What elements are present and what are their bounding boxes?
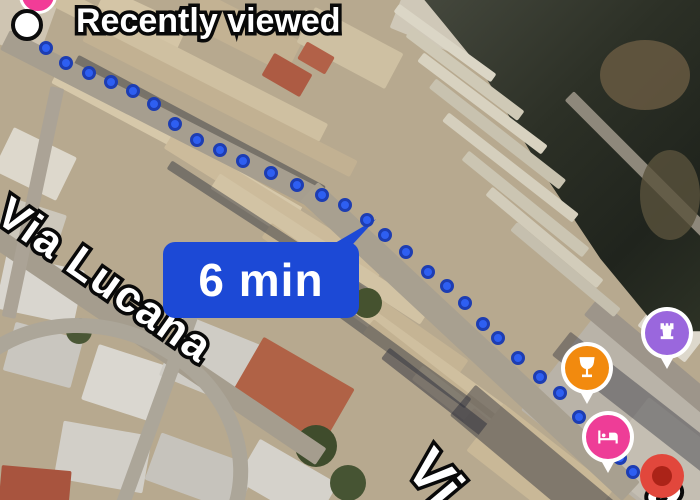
route-duration-bubble[interactable]: 6 min [163, 242, 359, 318]
map-label-recently-viewed[interactable]: Recently viewed [76, 2, 341, 41]
pin-body [561, 342, 613, 394]
route-dot [315, 188, 329, 202]
route-dot [190, 133, 204, 147]
route-dot [378, 228, 392, 242]
route-dot [533, 370, 547, 384]
route-origin-marker[interactable] [11, 9, 43, 41]
route-dot [421, 265, 435, 279]
castle-rook-icon [645, 311, 689, 355]
route-dot [264, 166, 278, 180]
pin-body [641, 307, 693, 359]
route-dot [511, 351, 525, 365]
pin-body [582, 411, 634, 463]
route-dot [476, 317, 490, 331]
route-dot [440, 279, 454, 293]
route-duration-label: 6 min [198, 253, 323, 307]
route-dot [338, 198, 352, 212]
route-destination-marker[interactable] [640, 454, 684, 498]
route-dot [147, 97, 161, 111]
route-dot [290, 178, 304, 192]
route-dot [491, 331, 505, 345]
route-dot [168, 117, 182, 131]
route-dot [458, 296, 472, 310]
map-canvas[interactable]: 6 min Recently viewed Via Lucana Vi a [0, 0, 700, 500]
route-dot [82, 66, 96, 80]
route-dot [236, 154, 250, 168]
route-dot [360, 213, 374, 227]
poi-pin-castle[interactable] [641, 307, 693, 373]
route-dot [59, 56, 73, 70]
poi-pin-hotel[interactable] [582, 411, 634, 477]
route-dot [213, 143, 227, 157]
route-dot [104, 75, 118, 89]
poi-pin-bar[interactable] [561, 342, 613, 408]
route-dot [39, 41, 53, 55]
destination-dot-icon [652, 466, 672, 486]
bed-icon [586, 415, 630, 459]
wine-glass-icon [565, 346, 609, 390]
route-dot [126, 84, 140, 98]
route-dot [399, 245, 413, 259]
